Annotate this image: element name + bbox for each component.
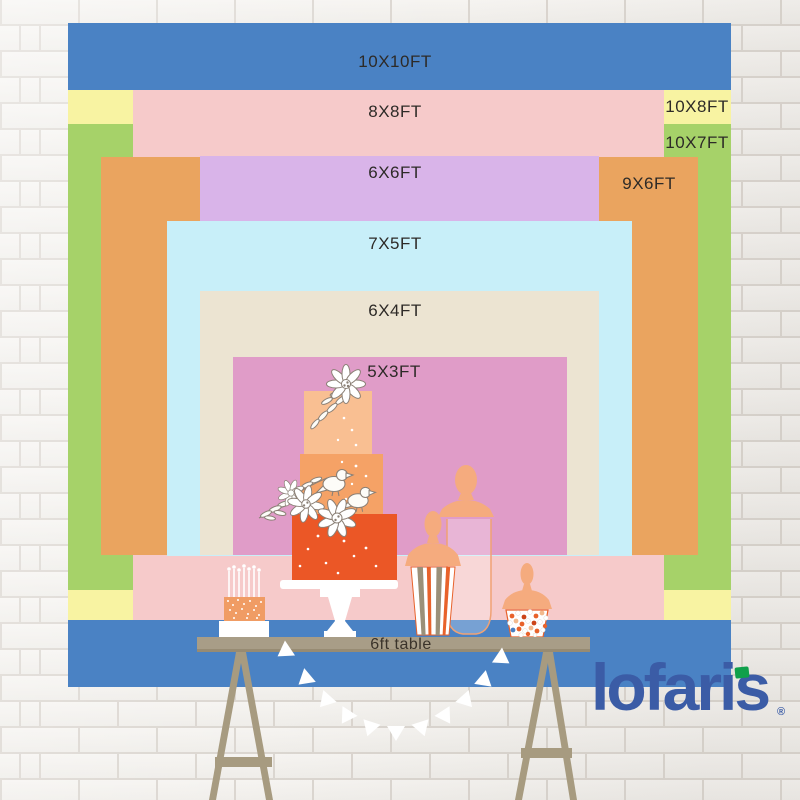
lofaris-logo-flag-icon	[734, 666, 749, 678]
small-candle-cake	[219, 564, 269, 638]
label-5x3ft: 5X3FT	[367, 362, 421, 382]
backdrop-size-chart: 10X10FT 8X8FT 10X8FT 10X7FT 6X6FT 9X6FT …	[0, 0, 800, 800]
label-10x8ft: 10X8FT	[665, 97, 728, 117]
small-cake-base	[219, 621, 269, 638]
label-8x8ft: 8X8FT	[368, 102, 422, 122]
candles	[229, 568, 259, 598]
label-9x6ft: 9X6FT	[622, 174, 676, 194]
label-6ft-table: 6ft table	[370, 636, 431, 654]
label-7x5ft: 7X5FT	[368, 234, 422, 254]
label-10x7ft: 10X7FT	[665, 133, 728, 153]
bunting-garland	[273, 641, 515, 741]
label-6x6ft: 6X6FT	[368, 163, 422, 183]
registered-mark: ®	[777, 706, 785, 718]
cake-stand	[280, 580, 398, 638]
label-6x4ft: 6X4FT	[368, 301, 422, 321]
apothecary-jar-small	[425, 511, 442, 543]
trestle-table	[197, 637, 590, 800]
candy-cup	[502, 563, 552, 637]
label-10x10ft: 10X10FT	[358, 52, 431, 72]
small-cake-body	[224, 597, 265, 621]
lofaris-logo: lofaris ®	[591, 657, 791, 737]
daisy-top	[327, 365, 366, 404]
